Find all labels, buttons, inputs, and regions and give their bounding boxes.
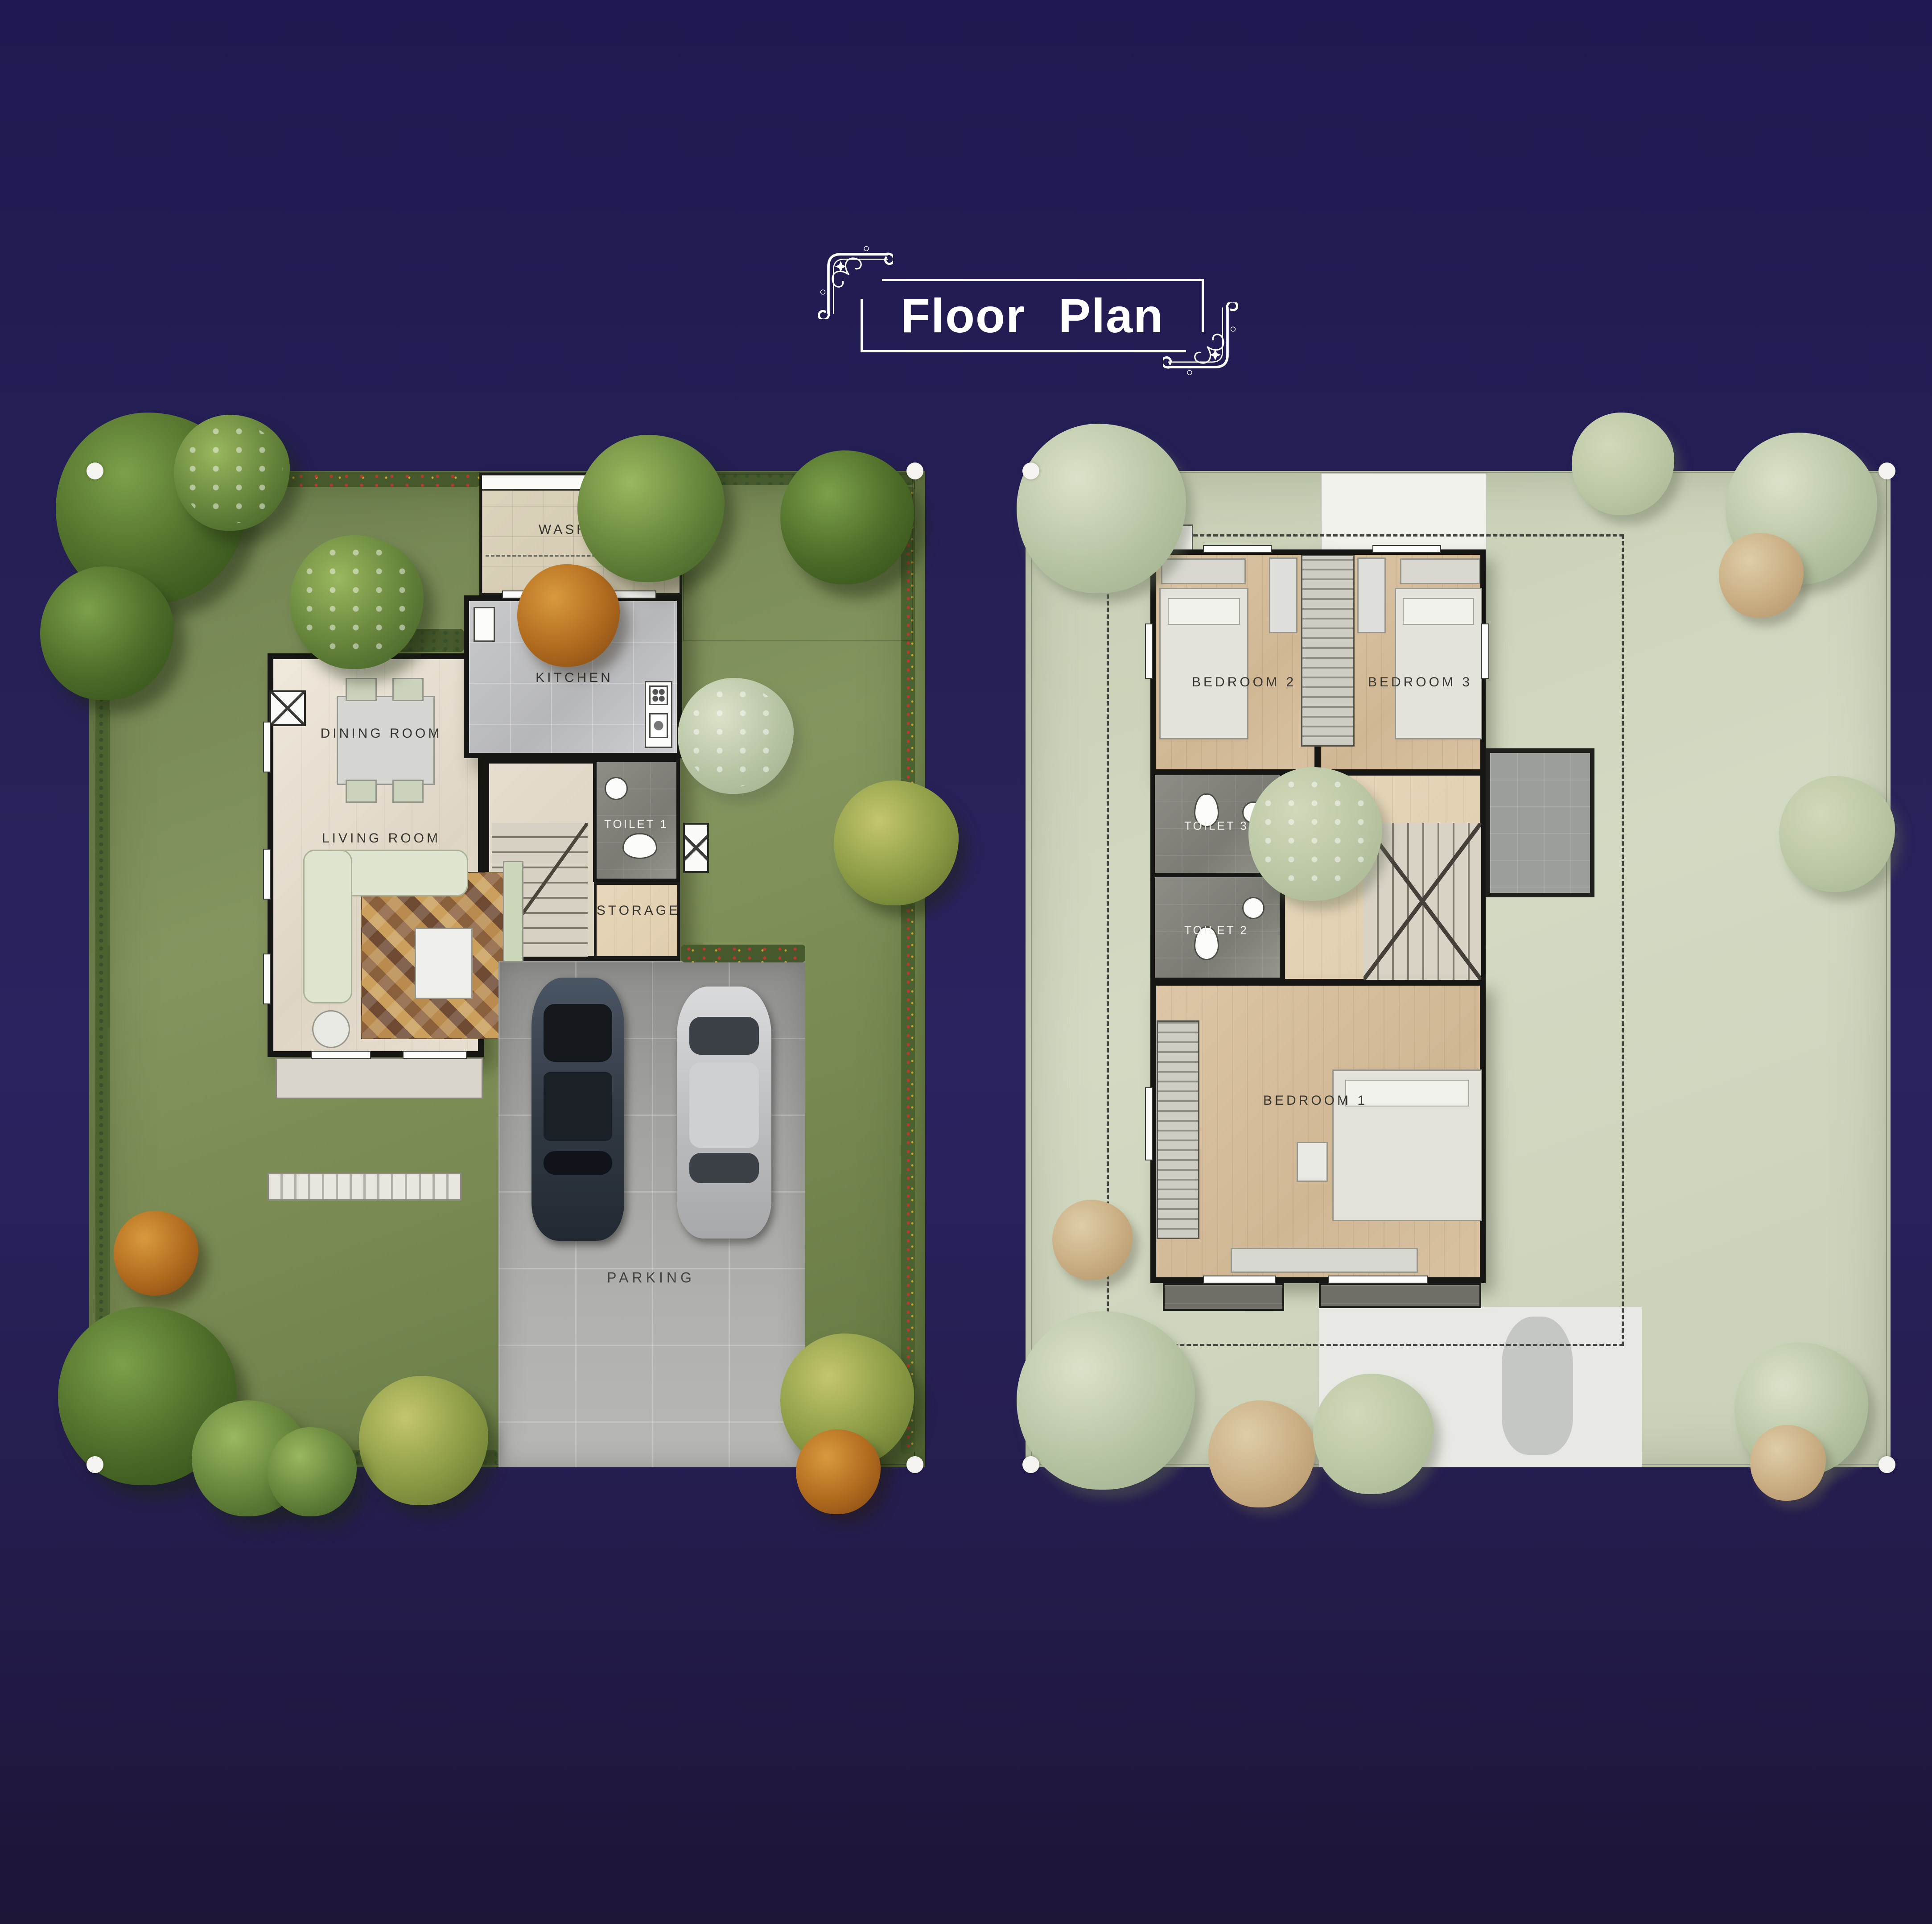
dresser (1161, 558, 1246, 584)
desk (1357, 557, 1386, 633)
room-label-living: LIVING ROOM (322, 831, 441, 846)
site-corner-marker (1878, 462, 1895, 479)
coffee-table (415, 928, 473, 999)
tree-faded (1313, 1374, 1434, 1494)
floor1-terrace (276, 1058, 483, 1099)
site-corner-marker (1878, 1456, 1895, 1473)
sink-icon (649, 713, 668, 738)
desk (1269, 557, 1298, 633)
site-corner-marker (87, 462, 103, 479)
wardrobe (1157, 1020, 1199, 1239)
page-title: Floor Plan (854, 288, 1211, 343)
dining-chair (392, 780, 424, 803)
site-corner-marker (906, 462, 923, 479)
ac-unit-icon (269, 690, 306, 726)
chair (1297, 1142, 1328, 1182)
window (1373, 546, 1440, 552)
dining-chair (346, 678, 377, 701)
car-silver-sedan (677, 987, 771, 1239)
floor2-balcony (1486, 748, 1594, 897)
floor2-lower-roof (1163, 1283, 1284, 1311)
floor1-pergola (268, 1173, 461, 1201)
window (1329, 1276, 1427, 1283)
stove-icon (649, 685, 668, 705)
car-windshield (689, 1017, 759, 1055)
tree-faded-autumn (1750, 1425, 1826, 1501)
room-label-kitchen: KITCHEN (536, 670, 613, 685)
sofa-side-section (303, 850, 352, 1003)
window (1146, 1088, 1152, 1160)
bed (1332, 1069, 1482, 1221)
window (1204, 1276, 1275, 1283)
site-corner-marker (1022, 1456, 1039, 1473)
room-label-storage: STORAGE (597, 903, 680, 918)
bed (1395, 588, 1482, 739)
window (264, 954, 270, 1003)
tree (834, 780, 959, 905)
window (312, 1052, 370, 1058)
title-frame-bottom-line (861, 350, 1186, 352)
site-corner-marker (87, 1456, 103, 1473)
car-seats (544, 1072, 612, 1140)
tree-autumn (796, 1429, 881, 1514)
window (1146, 624, 1152, 678)
window (264, 723, 270, 772)
car-roof (689, 1062, 759, 1148)
site-corner-marker (1022, 462, 1039, 479)
wardrobe (1301, 555, 1355, 747)
dining-chair (346, 780, 377, 803)
tree (268, 1427, 357, 1516)
tree (359, 1376, 488, 1505)
car-rear-window (689, 1153, 759, 1183)
title-frame-top-line (882, 279, 1204, 281)
parking-hedge (681, 945, 805, 962)
car-windshield (544, 1004, 612, 1062)
room-label-toilet3: TOILET 3 (1184, 819, 1248, 833)
window (264, 850, 270, 899)
ac-unit-icon (683, 823, 709, 873)
dresser (1400, 558, 1480, 584)
room-label-toilet2: TOILET 2 (1184, 924, 1248, 937)
tree-faded-autumn (1208, 1400, 1315, 1507)
sink-icon (605, 777, 628, 800)
room-label-bedroom3: BEDROOM 3 (1368, 675, 1472, 690)
site-corner-marker (906, 1456, 923, 1473)
floor1-room-storage (594, 882, 680, 959)
room-label-toilet1: TOILET 1 (604, 817, 668, 831)
floor2-stairs (1364, 823, 1481, 980)
bed (1159, 588, 1248, 739)
bed-pillow (1168, 598, 1240, 625)
dining-chair (392, 678, 424, 701)
sink-icon (1242, 897, 1265, 919)
bed-pillow (1403, 598, 1474, 625)
room-label-bedroom1: BEDROOM 1 (1263, 1093, 1368, 1108)
window (404, 1052, 466, 1058)
room-label-parking: PARKING (607, 1270, 695, 1286)
side-table (312, 1010, 350, 1048)
room-label-bedroom2: BEDROOM 2 (1192, 675, 1296, 690)
floor-plan-poster: Floor Plan (0, 0, 1932, 1924)
console (1231, 1248, 1418, 1273)
fridge-icon (474, 607, 495, 642)
window (1482, 624, 1488, 678)
toilet-icon (622, 833, 657, 859)
window (1204, 546, 1271, 552)
car-rear-deck (544, 1151, 612, 1175)
car-dark-convertible (531, 978, 624, 1241)
room-label-dining: DINING ROOM (321, 726, 442, 741)
floor2-lower-roof (1319, 1283, 1481, 1308)
